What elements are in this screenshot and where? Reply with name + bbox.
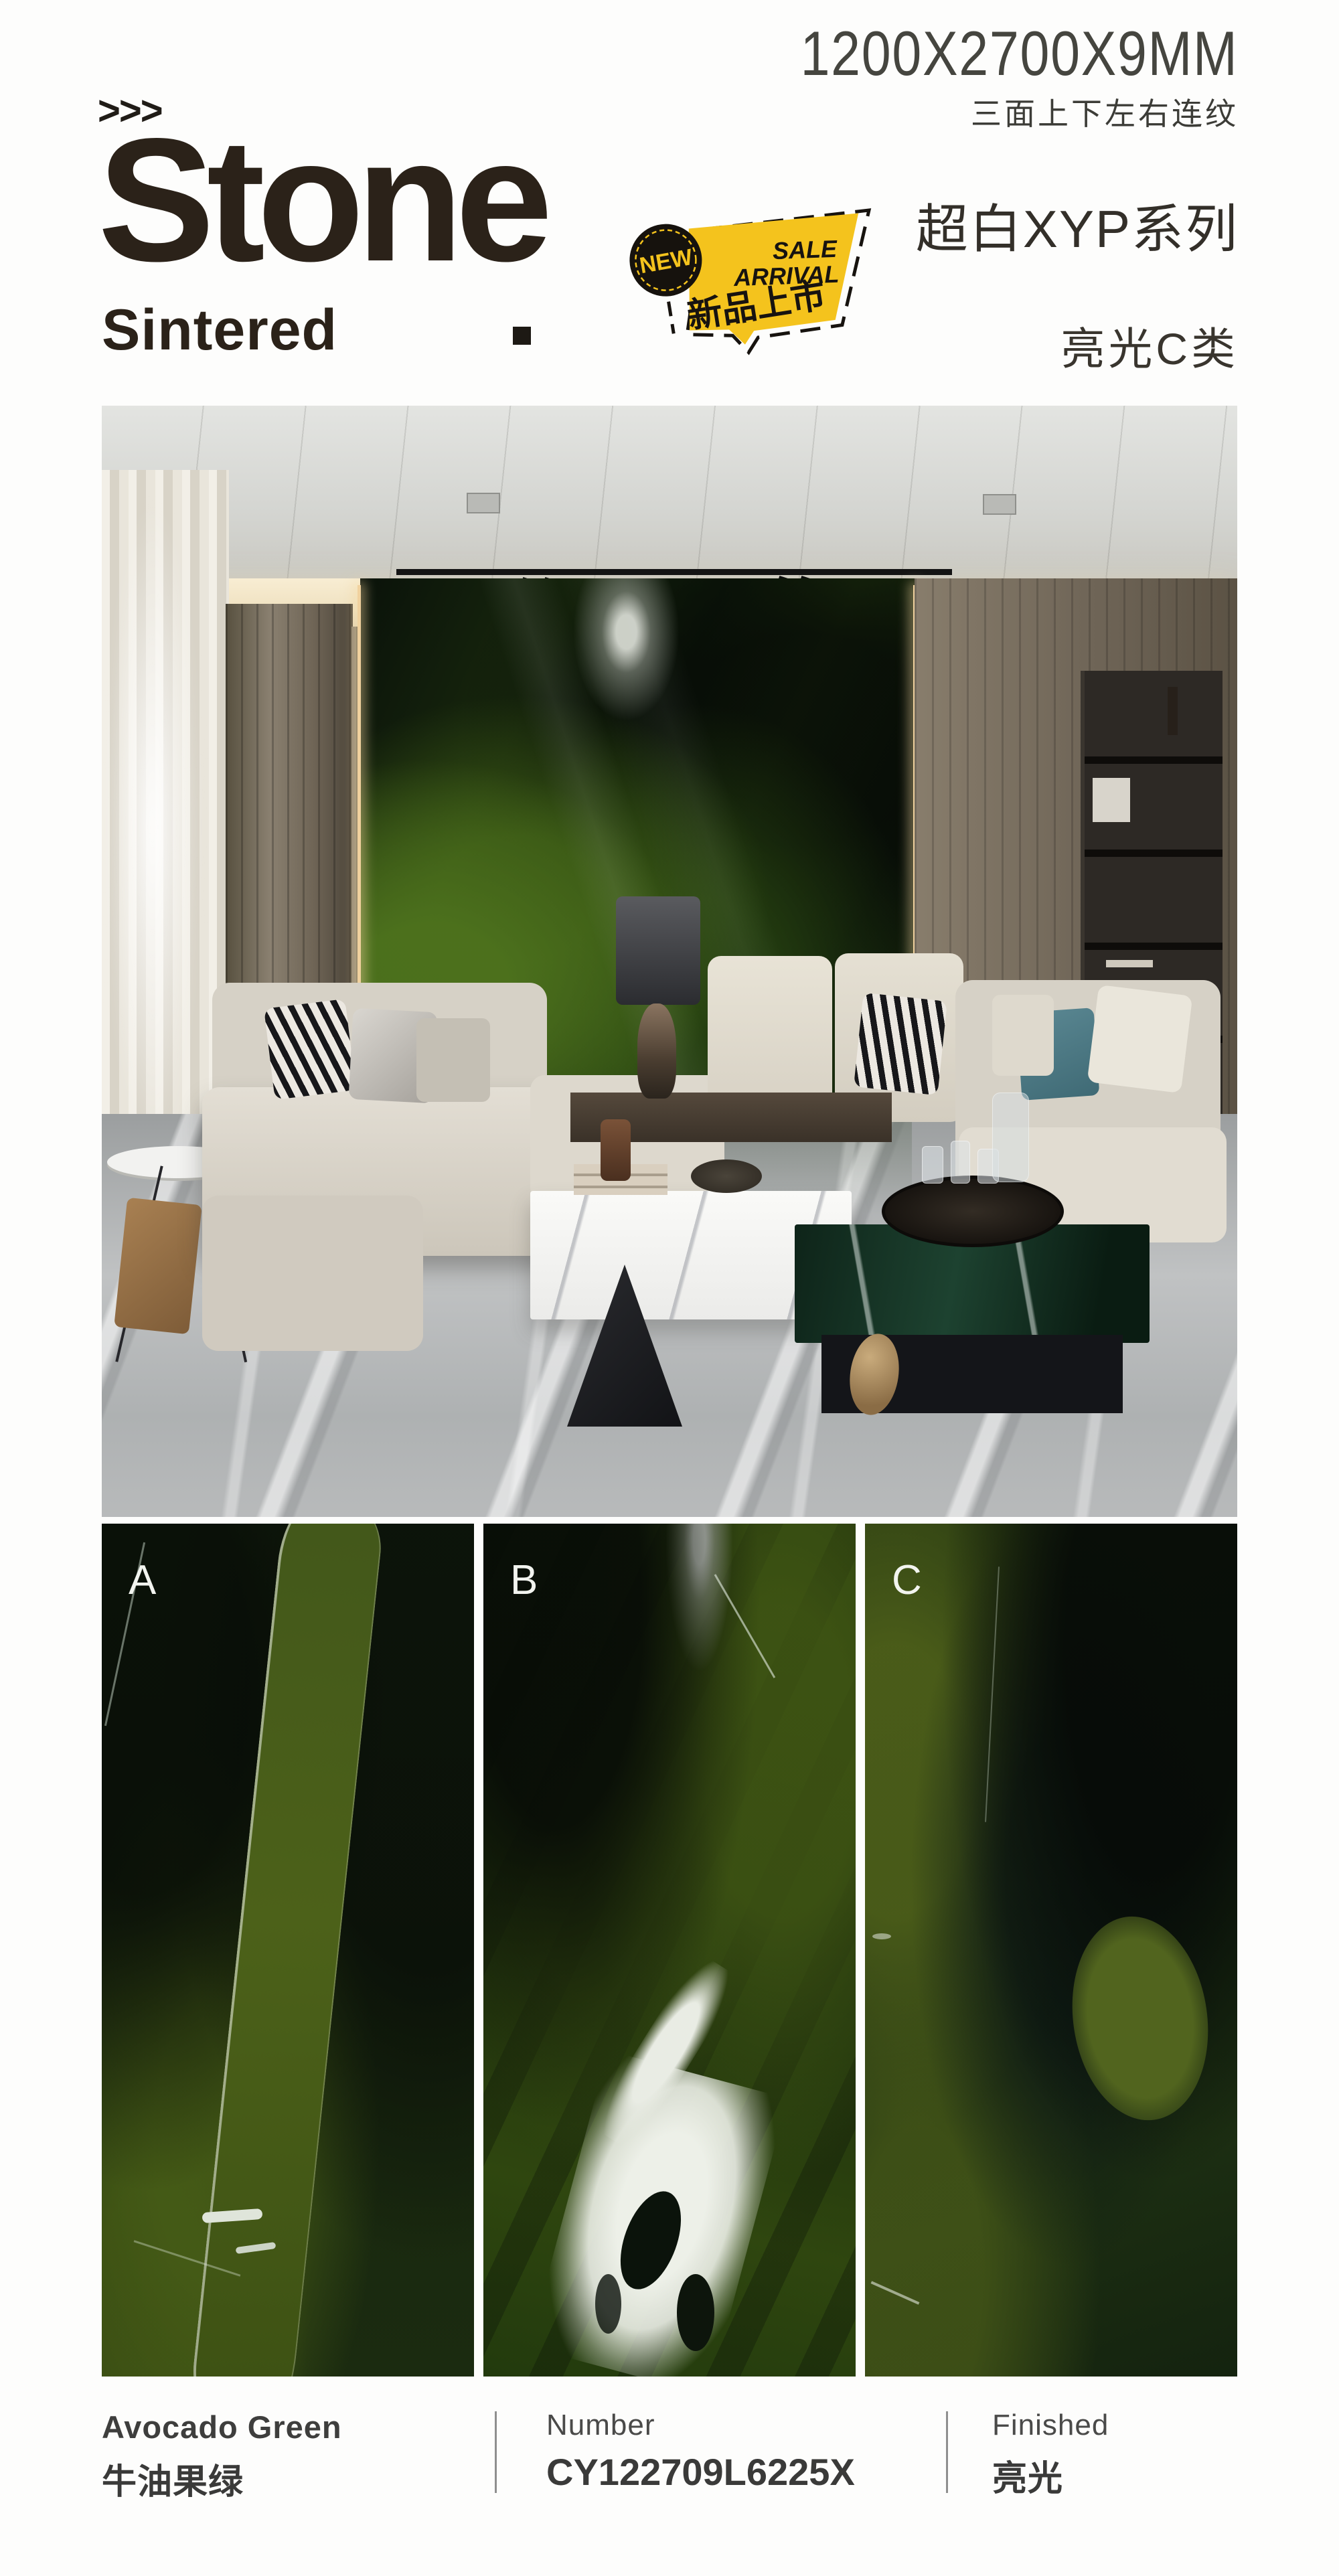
marble-vein (870, 2281, 919, 2304)
number-value: CY122709L6225X (546, 2450, 855, 2494)
new-arrival-badge-graphic: SALE ARRIVAL 新品上市 NEW (615, 193, 896, 385)
round-tray (882, 1176, 1064, 1247)
texture-panel-b: B (483, 1524, 856, 2377)
zebra-pillow (264, 999, 356, 1100)
room-photo (102, 406, 1237, 1517)
glass (922, 1146, 943, 1184)
glass (951, 1141, 970, 1184)
texture-panel-a: A (102, 1524, 474, 2377)
spec-divider (495, 2411, 497, 2493)
table-lamp-base (637, 1003, 676, 1099)
texture-panel-c: C (865, 1524, 1237, 2377)
panel-letter-b: B (510, 1560, 538, 1601)
marble-vein-band (186, 1524, 386, 2377)
badge-dash-tick (669, 301, 674, 333)
zebra-pillow (854, 993, 947, 1095)
olive-blob (1060, 1908, 1221, 2129)
gloss-class-label: 亮光C类 (1060, 313, 1239, 378)
table-lamp-shade (616, 896, 700, 1005)
white-pillow (1087, 985, 1193, 1093)
magazine-holder (114, 1198, 202, 1335)
square-dot-icon (513, 327, 531, 345)
texture-panel-strip: A B C (102, 1524, 1237, 2377)
page-title: Stone (98, 112, 545, 288)
dark-spot (677, 2274, 714, 2351)
spec-color: Avocado Green 牛油果绿 (102, 2409, 342, 2504)
color-name-zh: 牛油果绿 (102, 2453, 342, 2504)
decanter (992, 1093, 1029, 1182)
color-name-en: Avocado Green (102, 2409, 342, 2445)
vase (601, 1119, 631, 1181)
series-label: 超白XYP系列 (916, 187, 1239, 262)
book (1168, 687, 1178, 735)
ceiling (102, 406, 1237, 583)
new-arrival-badge: SALE ARRIVAL 新品上市 NEW (615, 193, 896, 385)
spec-finish: Finished 亮光 (992, 2409, 1109, 2500)
sofa-chaise (202, 1196, 423, 1351)
bowl (691, 1159, 762, 1193)
dark-spot (595, 2274, 621, 2334)
number-label: Number (546, 2409, 855, 2442)
white-fleck (872, 1933, 891, 1939)
panel-letter-c: C (892, 1560, 922, 1601)
ceiling-fixture (467, 493, 500, 513)
tile-size-label: 1200X2700X9MM (801, 17, 1239, 90)
panel-letter-a: A (129, 1560, 156, 1601)
pattern-continuity-label: 三面上下左右连纹 (971, 90, 1239, 134)
spec-divider (946, 2411, 948, 2493)
book (1106, 960, 1153, 967)
spec-number: Number CY122709L6225X (546, 2409, 855, 2494)
finished-label: Finished (992, 2409, 1109, 2442)
marble-vein (985, 1566, 1000, 1822)
page-subtitle: Sintered (102, 297, 337, 364)
window-light (107, 499, 198, 1155)
ceiling-fixture (983, 494, 1016, 515)
book (1093, 778, 1130, 822)
finished-value: 亮光 (992, 2450, 1109, 2500)
track-light (396, 569, 952, 575)
white-pillow (992, 995, 1054, 1076)
marble-vein (714, 1574, 776, 1678)
gray-pillow (416, 1018, 490, 1102)
